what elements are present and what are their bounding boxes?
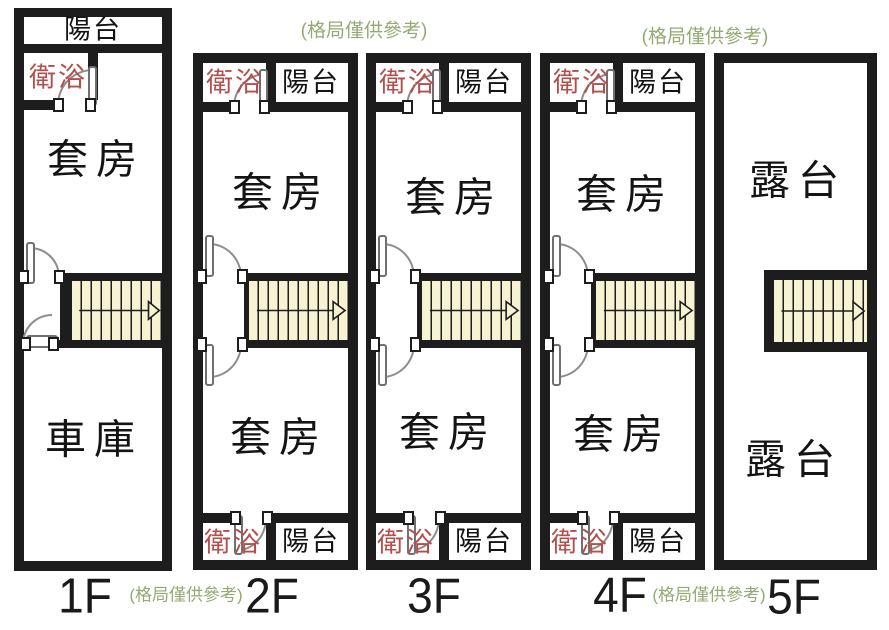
wall (540, 53, 705, 63)
wall (439, 102, 521, 112)
wall (14, 44, 172, 53)
staircase (774, 280, 867, 342)
wall (60, 273, 162, 281)
door-jamb (20, 337, 31, 351)
layout-note-top-left: (格局僅供參考) (301, 22, 428, 41)
room-label-bath: 衛浴 (206, 70, 264, 97)
wall (764, 270, 774, 352)
door-jamb (432, 100, 443, 114)
room-label-bath: 衛浴 (379, 70, 437, 97)
stair-direction-arrow (596, 281, 695, 340)
floor-label-5f: 5F (767, 574, 821, 623)
room-label-balcony: 陽台 (282, 70, 340, 97)
wall (521, 53, 531, 570)
layout-note-bottom-right: (格局僅供參考) (652, 587, 765, 604)
door-jamb (543, 337, 554, 352)
room-label-balcony: 陽台 (629, 70, 687, 97)
floor-label-4f: 4F (593, 572, 647, 621)
wall (714, 53, 724, 570)
floorplan-3f: 衛浴 陽台 套房 套房 衛浴 陽台 (366, 53, 531, 570)
room-label-balcony: 陽台 (455, 529, 513, 556)
wall (417, 273, 521, 281)
room-label-suite: 套房 (576, 175, 674, 216)
wall (193, 53, 358, 63)
wall (613, 523, 623, 560)
room-label-suite: 套房 (399, 413, 497, 454)
stair-direction-arrow (774, 280, 867, 342)
door-jamb (229, 100, 240, 114)
door-jamb (606, 100, 617, 114)
door-jamb (369, 337, 380, 352)
wall (540, 53, 550, 570)
wall (614, 513, 695, 523)
room-label-garage: 車庫 (45, 420, 143, 461)
door-jamb (402, 100, 413, 114)
floorplan-5f: 露台 露台 (714, 53, 877, 570)
door-jamb (48, 337, 59, 351)
room-label-bath: 衛浴 (29, 65, 87, 92)
layout-note-bottom-left: (格局僅供參考) (129, 587, 242, 604)
wall (162, 8, 172, 571)
room-label-balcony: 陽台 (629, 529, 687, 556)
floor-label-2f: 2F (245, 573, 299, 622)
stair-direction-arrow (72, 281, 162, 340)
wall (366, 53, 376, 570)
door-jamb (53, 98, 64, 112)
door-jamb (54, 270, 65, 284)
door-jamb (230, 511, 241, 525)
room-label-suite: 套房 (405, 178, 503, 219)
staircase (249, 281, 348, 340)
door-jamb (543, 269, 554, 284)
wall (193, 560, 358, 570)
room-label-suite: 套房 (47, 140, 145, 181)
room-label-bath: 衛浴 (377, 530, 435, 557)
staircase (422, 281, 521, 340)
room-label-suite: 套房 (230, 418, 328, 459)
door-jamb (85, 98, 96, 112)
room-label-suite: 套房 (573, 415, 671, 456)
wall (695, 53, 705, 570)
wall (60, 273, 72, 348)
wall (348, 53, 358, 570)
door-jamb (584, 269, 595, 284)
wall (440, 513, 521, 523)
wall (764, 342, 877, 352)
wall (244, 273, 348, 281)
wall (613, 102, 695, 112)
stair-direction-arrow (249, 281, 348, 340)
wall (591, 273, 695, 281)
wall (244, 340, 348, 348)
door-jamb (410, 337, 421, 352)
room-label-bath: 衛浴 (204, 530, 262, 557)
room-label-balcony: 陽台 (455, 70, 513, 97)
layout-note-top-right: (格局僅供參考) (642, 28, 769, 47)
door-jamb (609, 511, 620, 525)
door-jamb (237, 269, 248, 284)
wall (764, 270, 877, 280)
door-jamb (435, 511, 446, 525)
door-jamb (259, 100, 270, 114)
room-label-balcony: 陽台 (282, 529, 340, 556)
room-label-bath: 衛浴 (553, 70, 611, 97)
floor-plan-image: 陽台 衛浴 套房 車庫 (0, 0, 889, 630)
door-jamb (410, 269, 421, 284)
wall (266, 523, 276, 560)
wall (867, 53, 877, 570)
door-jamb (196, 269, 207, 284)
room-label-terrace: 露台 (749, 161, 847, 202)
wall (439, 523, 449, 560)
door-jamb (196, 337, 207, 352)
staircase (596, 281, 695, 340)
door-jamb (403, 511, 414, 525)
room-label-suite: 套房 (232, 173, 330, 214)
floor-label-3f: 3F (407, 573, 461, 622)
wall (267, 513, 348, 523)
floorplan-1f: 陽台 衛浴 套房 車庫 (14, 8, 172, 571)
room-label-bath: 衛浴 (551, 530, 609, 557)
stair-direction-arrow (422, 281, 521, 340)
door-jamb (237, 337, 248, 352)
door-jamb (262, 511, 273, 525)
wall (366, 560, 531, 570)
room-label-terrace: 露台 (745, 440, 843, 481)
wall (266, 102, 348, 112)
room-label-balcony: 陽台 (64, 17, 122, 44)
floor-label-1f: 1F (58, 573, 112, 622)
wall (14, 8, 24, 571)
staircase (72, 281, 162, 340)
door-jamb (577, 511, 588, 525)
door-jamb (584, 337, 595, 352)
wall (714, 53, 877, 63)
floorplan-4f: 衛浴 陽台 套房 套房 衛浴 陽台 (540, 53, 705, 570)
wall (417, 340, 521, 348)
wall (193, 53, 203, 570)
floorplan-2f: 衛浴 陽台 套房 套房 衛浴 陽台 (193, 53, 358, 570)
door-jamb (18, 270, 29, 284)
wall (714, 560, 877, 570)
door-jamb (369, 269, 380, 284)
door-jamb (576, 100, 587, 114)
wall (591, 340, 695, 348)
wall (366, 53, 531, 63)
